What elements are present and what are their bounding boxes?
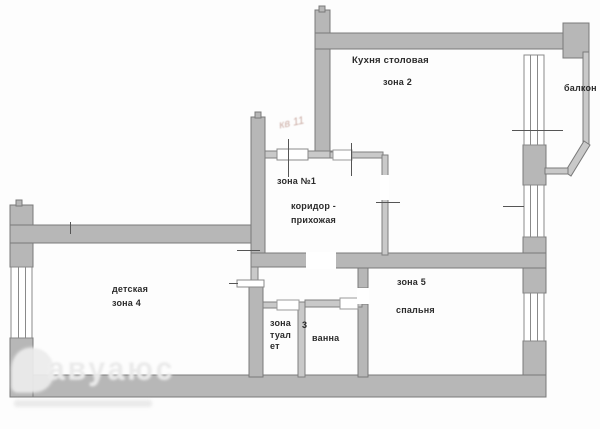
door-gap-bedroom xyxy=(357,288,369,304)
wall-nub-left-pillar xyxy=(16,200,22,206)
door-gap-corridor-right xyxy=(380,175,389,200)
wall-nursery-top xyxy=(10,225,253,243)
window-frame xyxy=(11,267,32,338)
window-kitchen-balcony xyxy=(524,55,544,145)
wall-balcony-right xyxy=(583,52,589,145)
window-bedroom-right xyxy=(524,293,544,341)
window-kitchen-right xyxy=(524,185,544,237)
watermark-subline xyxy=(14,400,152,407)
window-frame xyxy=(524,55,544,145)
wall-balcony-chamfer xyxy=(565,141,590,176)
room-label-kitchen-zone: зона 2 xyxy=(383,76,412,88)
window-nursery-left xyxy=(11,267,32,338)
wall-toilet-right xyxy=(298,302,305,377)
wall-nursery-right xyxy=(249,287,263,377)
door-entrance xyxy=(277,149,308,160)
door-nursery xyxy=(237,280,264,287)
room-label-toilet: зона туал ет xyxy=(270,318,291,353)
room-label-zone1: зона №1 xyxy=(277,175,316,187)
room-label-kitchen: Кухня столовая xyxy=(352,55,429,67)
wall-bedroom-left-lower xyxy=(358,304,368,377)
wall-corridor-right xyxy=(382,155,388,255)
wall-nub-corridor xyxy=(255,112,261,118)
door-toilet xyxy=(277,300,299,310)
wall-right-block-1 xyxy=(523,145,546,185)
room-label-nursery-zone: зона 4 xyxy=(112,297,141,309)
door-bath xyxy=(340,298,358,309)
wall-nub-kitchen-pillar xyxy=(319,6,325,12)
wall-left-bottom-block xyxy=(10,338,33,397)
room-label-balcony: балкон xyxy=(564,82,597,94)
room-label-nursery: детская xyxy=(112,283,148,295)
wall-hall-shoulder xyxy=(251,253,307,267)
floor-plan: Кухня столовая зона 2 балкон зона №1 кор… xyxy=(0,0,600,429)
room-label-bath: ванна xyxy=(312,332,339,344)
wall-bedroom-left-upper xyxy=(358,268,368,288)
window-frame xyxy=(524,293,544,341)
room-label-bath-number: 3 xyxy=(302,319,307,331)
window-frame xyxy=(524,185,544,237)
room-label-corridor: коридор - прихожая xyxy=(291,200,336,227)
wall-balcony-bottom xyxy=(545,168,568,174)
wall-kitchen-top xyxy=(315,33,565,49)
door-gap-hall xyxy=(306,252,336,269)
wall-corridor-left xyxy=(251,117,265,255)
wall-kitchen-left-pillar xyxy=(315,10,330,157)
room-label-zone5: зона 5 xyxy=(397,276,426,288)
door-corridor-kitchen xyxy=(333,150,352,160)
wall-bottom xyxy=(10,375,546,397)
room-label-bedroom: спальня xyxy=(396,304,435,316)
wall-kitchen-bottom xyxy=(335,253,546,268)
